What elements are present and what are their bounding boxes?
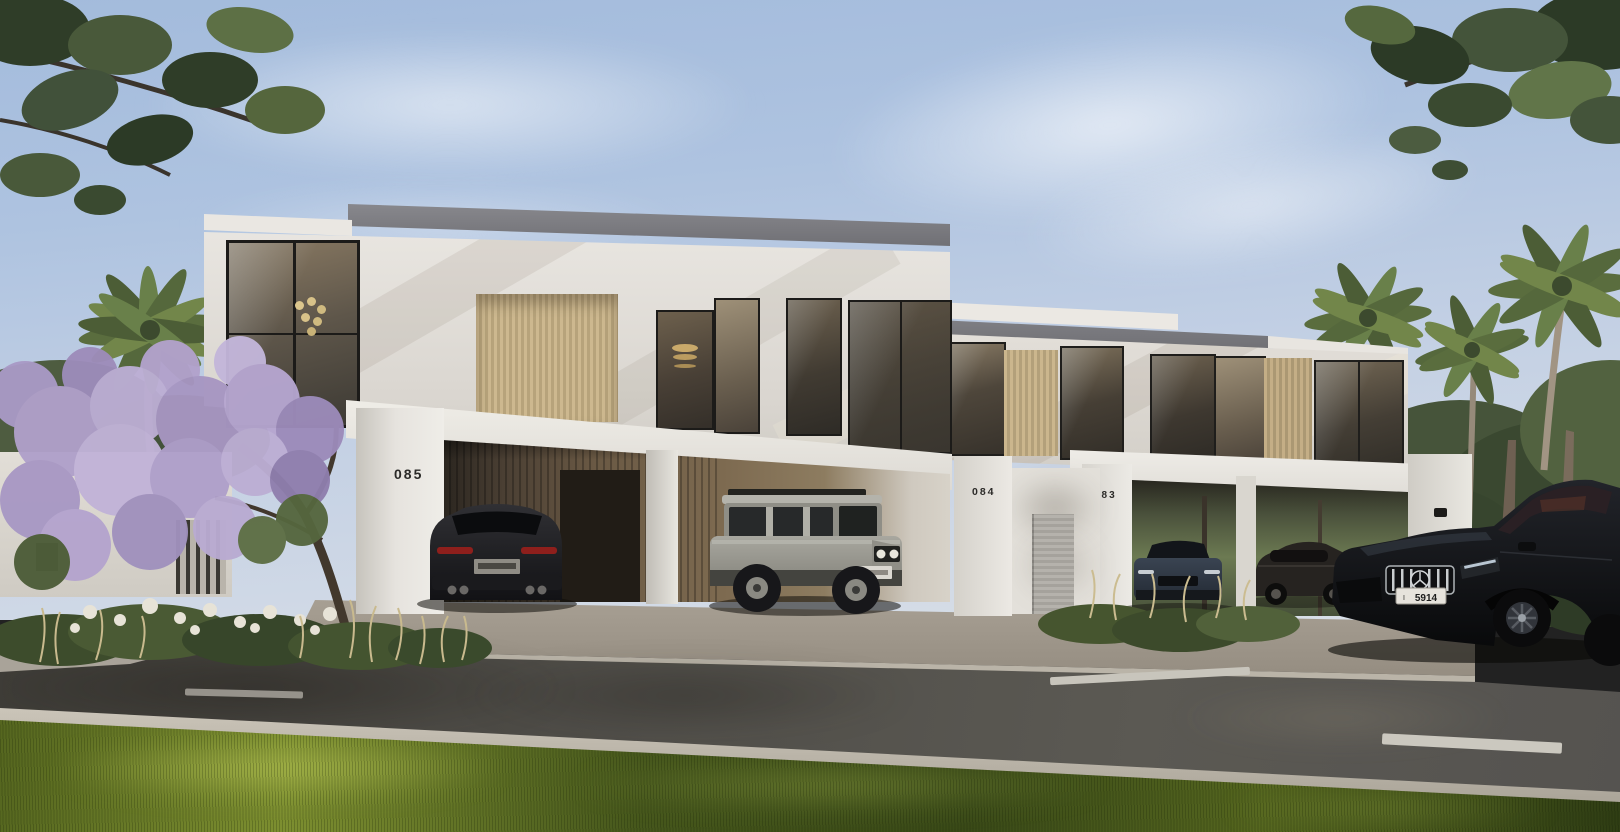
branch-top-left bbox=[0, 0, 325, 215]
architectural-render-scene: 083 bbox=[0, 0, 1620, 832]
overhanging-foliage bbox=[0, 0, 1620, 832]
branch-top-right bbox=[1341, 0, 1620, 180]
